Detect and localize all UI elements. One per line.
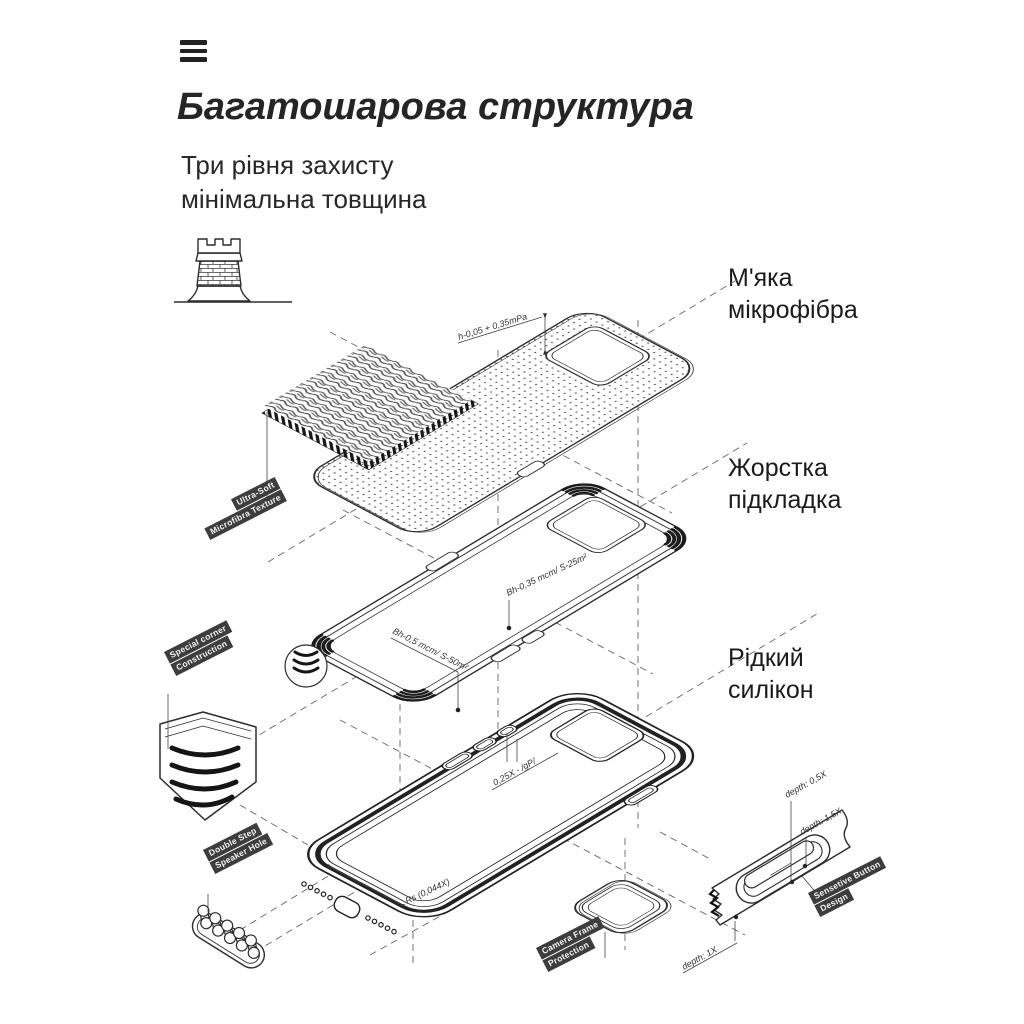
annotation-depth-1: depth: 1X bbox=[680, 944, 719, 972]
annotation-thickness-top: h-0,05 + 0,35mPa bbox=[457, 311, 529, 342]
castle-tower-icon bbox=[174, 239, 292, 302]
hard-lining-layer bbox=[296, 475, 702, 711]
silicone-case-layer bbox=[292, 685, 713, 928]
speaker-holes-detail bbox=[185, 903, 271, 973]
infographic-page: Багатошарова структура Три рівня захисту… bbox=[0, 0, 1024, 1024]
magnifier-circle bbox=[285, 645, 327, 687]
annotation-depth-05: depth: 0,5X bbox=[783, 768, 829, 800]
